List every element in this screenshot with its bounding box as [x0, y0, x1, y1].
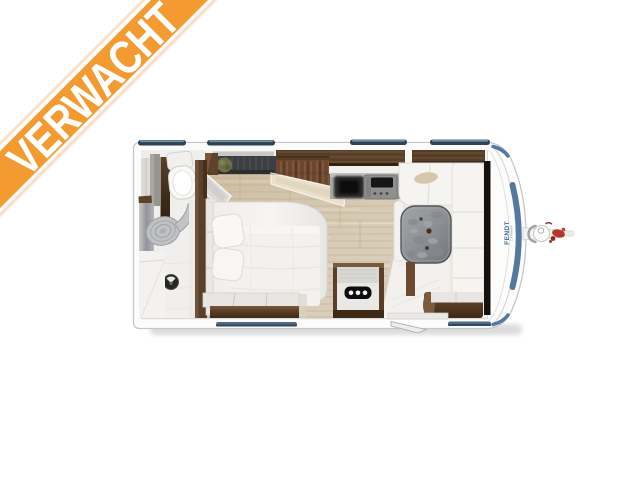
svg-text:CARAVAN: CARAVAN [511, 225, 514, 241]
